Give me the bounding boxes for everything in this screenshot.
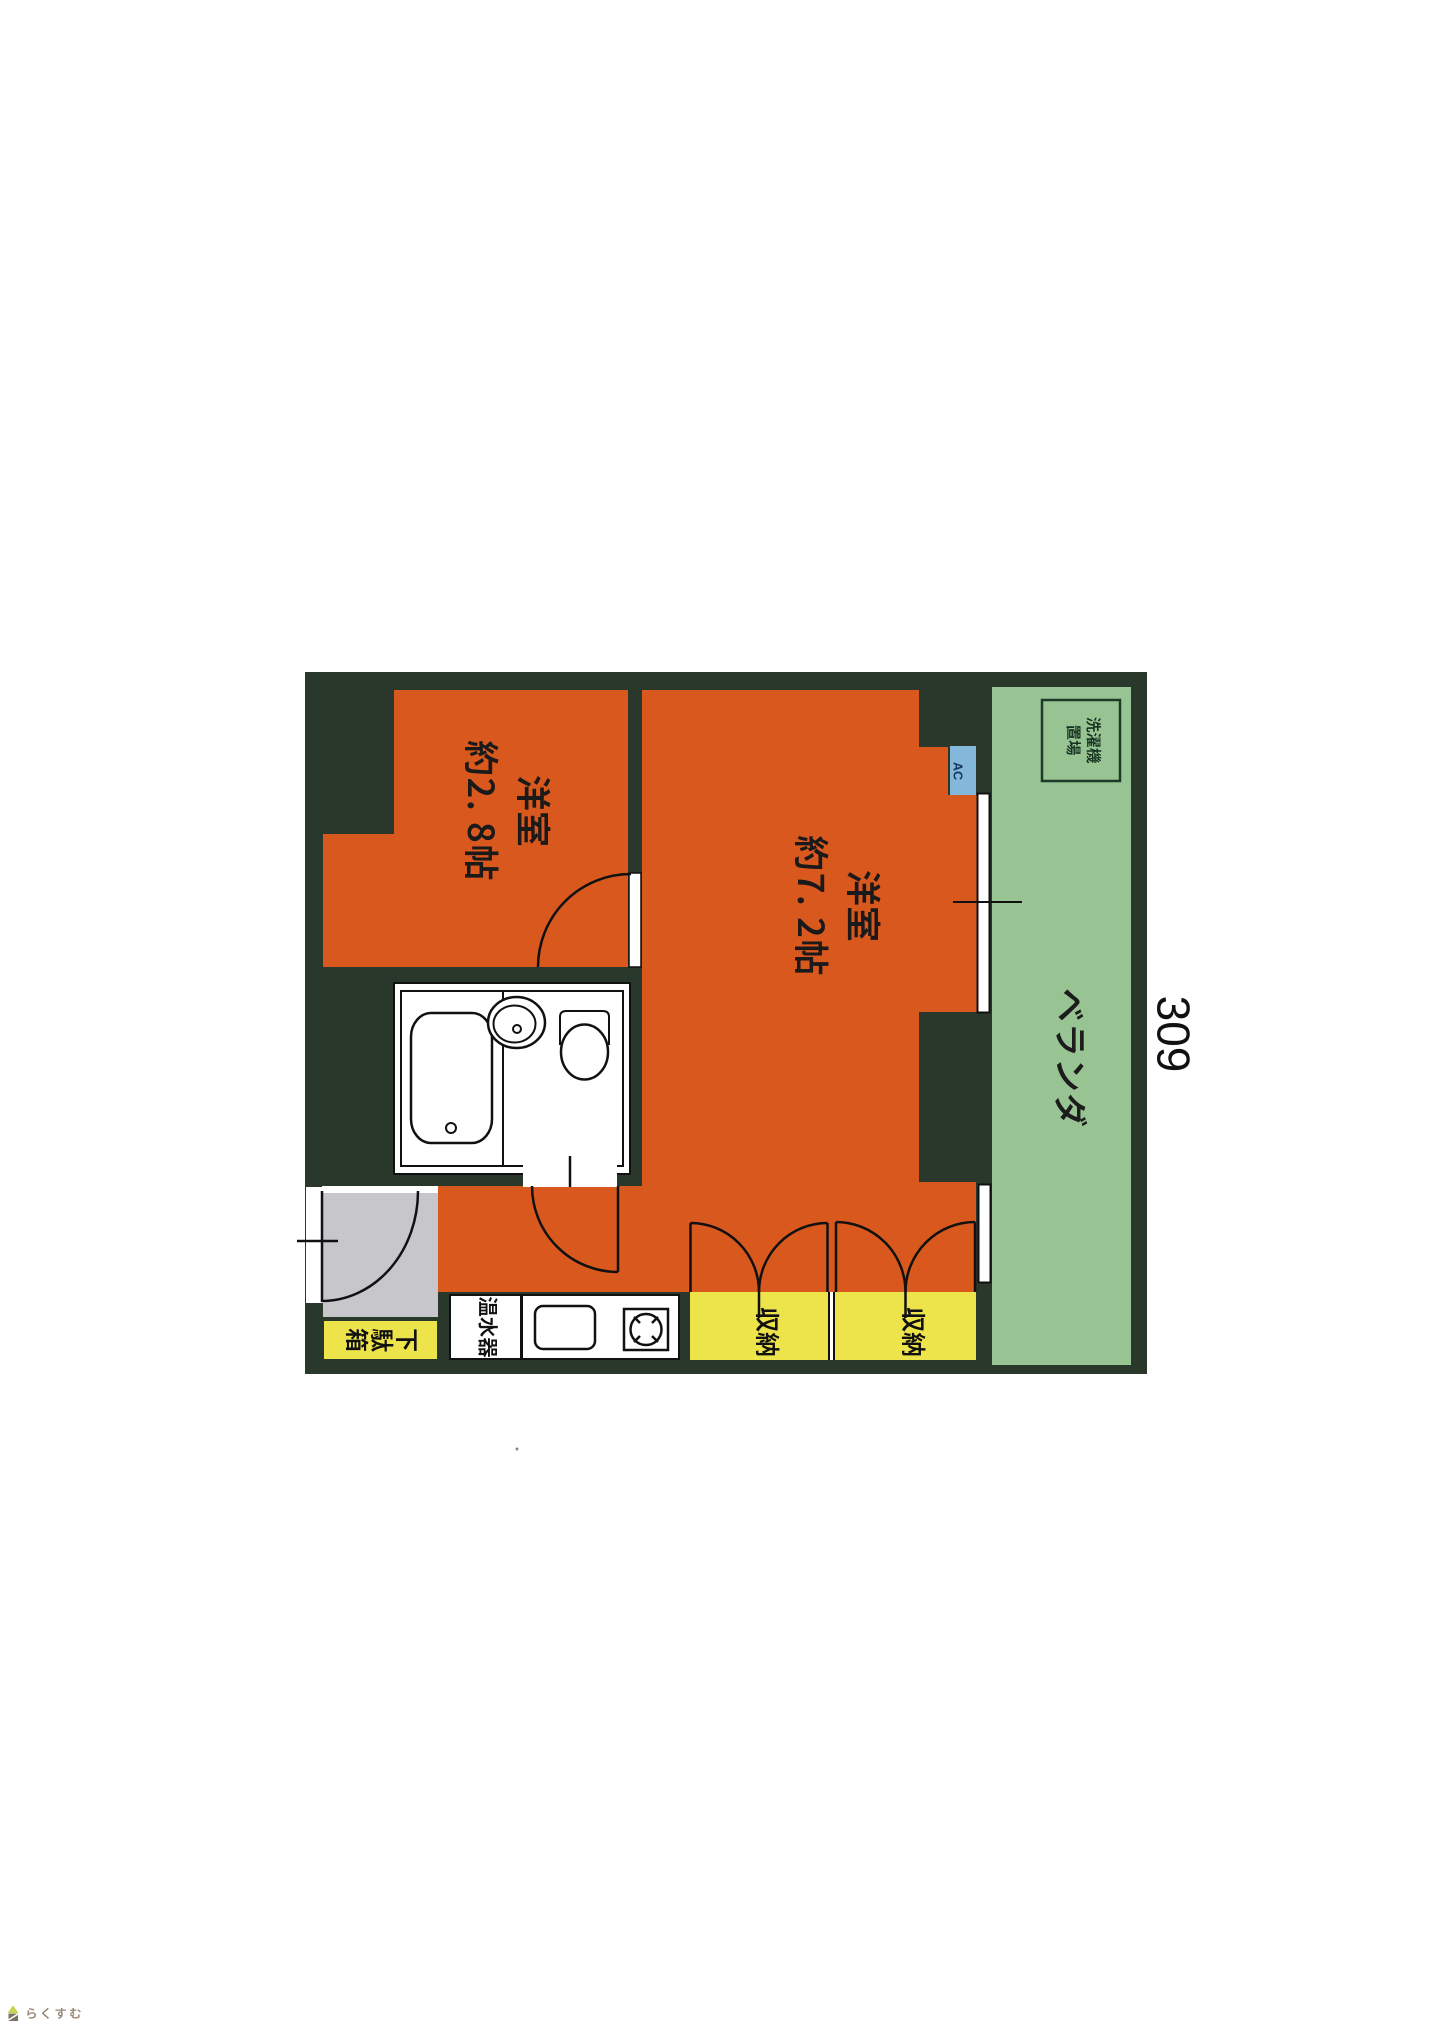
svg-text:AC: AC xyxy=(951,762,965,780)
svg-text:309: 309 xyxy=(1148,996,1200,1073)
svg-text:下: 下 xyxy=(391,1328,426,1352)
svg-text:ベランダ: ベランダ xyxy=(1048,988,1097,1128)
svg-text:収納: 収納 xyxy=(896,1307,932,1357)
svg-text:温水器: 温水器 xyxy=(475,1296,505,1358)
svg-text:収納: 収納 xyxy=(750,1307,786,1357)
svg-text:らくすむ: らくすむ xyxy=(25,2003,84,2022)
